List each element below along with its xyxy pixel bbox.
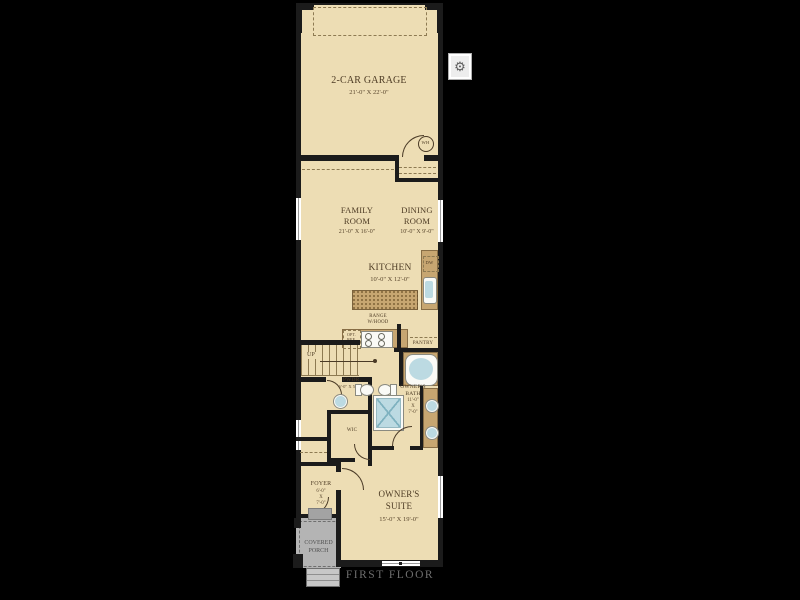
closet-shelf-line: [399, 173, 436, 174]
window-mullion: [399, 562, 402, 565]
burner: [365, 333, 372, 340]
bath-vanity: [423, 388, 438, 448]
window: [296, 420, 301, 450]
room-label-owners-suite-2: SUITE: [368, 501, 430, 511]
wall: [294, 518, 301, 528]
stairs-up-label: UP: [302, 352, 320, 359]
room-label-wic: WIC: [340, 428, 364, 434]
room-label-dining-1: DINING: [392, 206, 442, 216]
wall: [293, 554, 303, 568]
closet-shelf-line: [399, 167, 436, 168]
wall: [424, 155, 443, 161]
sheet-title: FIRST FLOOR: [330, 569, 450, 581]
range-label-2: W/HOOD: [360, 320, 396, 325]
burner: [365, 340, 372, 347]
room-label-foyer: FOYER: [305, 481, 337, 488]
dishwasher-label: DW: [419, 260, 440, 265]
burner: [378, 333, 385, 340]
garage-door-outline: [313, 7, 427, 36]
coat-closet-shelf: [300, 452, 327, 453]
room-dims-kitchen: 10'-0" X 12'-0": [352, 276, 428, 283]
gear-icon: ⚙: [454, 59, 466, 75]
room-label-dining-2: ROOM: [392, 217, 442, 227]
powder-sink: [334, 395, 347, 408]
range-label-1: RANGE: [360, 314, 396, 319]
wall: [296, 155, 399, 161]
room-dims-garage: 21'-0" X 22'-0": [319, 89, 419, 96]
room-label-owners-suite-1: OWNER'S: [368, 489, 430, 499]
room-label-garage: 2-CAR GARAGE: [319, 75, 419, 86]
wall: [410, 446, 423, 450]
vanity-sink: [426, 400, 438, 412]
bathtub-basin: [409, 358, 433, 380]
room-dims-dining: 10'-0" X 9'-0": [392, 229, 442, 236]
kitchen-island: [352, 290, 418, 310]
room-label-powder: PWDR.: [336, 377, 368, 383]
room-label-porch-2: PORCH: [297, 548, 340, 555]
room-dims-foyer-1: 6'-0": [305, 489, 337, 495]
room-dims-family: 21'-0" X 16'-0": [329, 229, 385, 236]
water-heater-label: WH: [418, 140, 433, 145]
wall: [296, 377, 326, 382]
wall: [336, 462, 341, 472]
gear-button[interactable]: ⚙: [448, 53, 472, 80]
toilet-bowl: [360, 384, 374, 396]
room-label-family-2: ROOM: [329, 217, 385, 227]
kitchen-sink-basin: [425, 281, 433, 298]
room-label-family-1: FAMILY: [329, 206, 385, 216]
wall: [395, 178, 443, 182]
garage-door-header: [314, 3, 425, 5]
shower: [376, 398, 401, 428]
patio-option-line: [302, 169, 394, 170]
porch-stoop: [308, 508, 332, 520]
window: [296, 198, 301, 240]
wall: [296, 437, 331, 441]
wall: [368, 446, 394, 450]
room-label-kitchen: KITCHEN: [352, 263, 428, 274]
stairs-direction-dot: [373, 359, 377, 363]
wall: [327, 410, 372, 414]
pantry-shelf-line: [410, 337, 437, 338]
wall: [296, 462, 340, 466]
window: [438, 476, 443, 518]
vanity-sink: [426, 427, 438, 439]
room-dims-owners-suite: 15'-0" X 19'-0": [368, 516, 430, 523]
burner: [378, 340, 385, 347]
room-label-pantry: PANTRY: [404, 341, 442, 347]
room-label-porch-1: COVERED: [297, 540, 340, 547]
wall: [336, 518, 341, 567]
floorplan-page: 2-CAR GARAGE 21'-0" X 22'-0" WH FAMILY R…: [0, 0, 800, 600]
stairs-direction-line: [320, 361, 376, 362]
